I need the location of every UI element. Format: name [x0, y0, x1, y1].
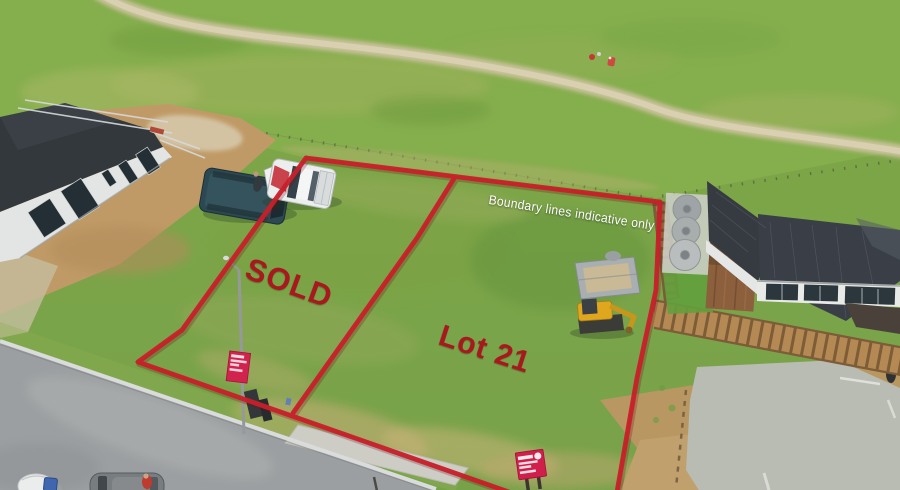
- aerial-photo: SOLD Lot 21 Boundary lines indicative on…: [0, 0, 900, 490]
- cab: [582, 298, 598, 314]
- photo-canvas: [0, 0, 900, 490]
- bucket: [626, 327, 633, 334]
- parked-car: [90, 473, 164, 490]
- water-tanks: [670, 195, 702, 271]
- concrete-slab: [686, 360, 900, 490]
- pole-sign: [226, 351, 250, 383]
- blue-bin: [43, 477, 57, 490]
